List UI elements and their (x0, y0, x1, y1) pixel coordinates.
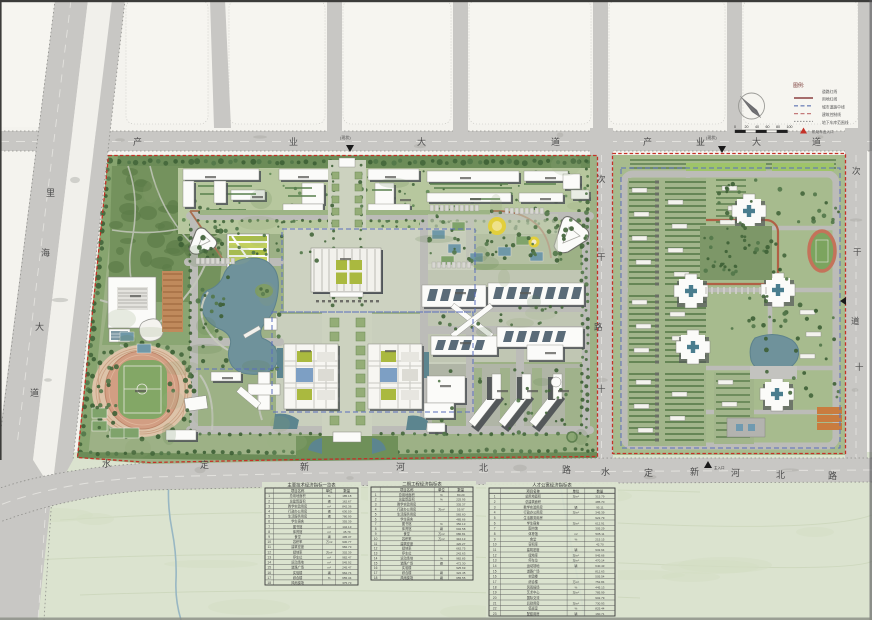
svg-text:路: 路 (594, 322, 603, 332)
svg-text:10: 10 (267, 540, 271, 544)
svg-text:185.18: 185.18 (342, 494, 352, 498)
svg-text:17: 17 (374, 571, 378, 575)
svg-text:4: 4 (375, 508, 377, 512)
svg-text:485.66: 485.66 (456, 517, 466, 521)
svg-text:主要技术经济指标一览表: 主要技术经济指标一览表 (287, 482, 336, 489)
svg-text:825.44: 825.44 (595, 607, 605, 611)
svg-text:次: 次 (597, 174, 606, 184)
svg-text:教学实验用房: 教学实验用房 (397, 502, 416, 507)
svg-text:万m²: 万m² (573, 601, 580, 605)
svg-text:用地红线: 用地红线 (822, 97, 837, 102)
svg-text:食堂: 食堂 (294, 534, 300, 539)
svg-text:470.14: 470.14 (595, 559, 605, 563)
svg-text:5: 5 (268, 515, 270, 519)
svg-text:3: 3 (268, 504, 270, 508)
svg-text:982.85: 982.85 (456, 556, 466, 560)
svg-text:902.79: 902.79 (595, 596, 605, 600)
svg-text:总用地面积: 总用地面积 (290, 493, 307, 498)
svg-text:停车位: 停车位 (528, 558, 538, 563)
svg-text:3: 3 (375, 503, 377, 507)
svg-text:(现状): (现状) (706, 134, 717, 140)
svg-text:315.79: 315.79 (595, 495, 605, 499)
svg-text:业: 业 (289, 137, 298, 147)
svg-text:13: 13 (267, 556, 271, 560)
svg-text:930.77: 930.77 (342, 540, 352, 544)
svg-text:4: 4 (494, 511, 496, 515)
svg-text:m²: m² (327, 525, 331, 529)
svg-text:定: 定 (200, 459, 209, 470)
svg-text:项目名称: 项目名称 (526, 488, 540, 493)
svg-text:里: 里 (46, 188, 55, 198)
svg-text:二期工程经济指标表: 二期工程经济指标表 (402, 481, 442, 488)
svg-text:图例:: 图例: (793, 82, 804, 89)
svg-text:962.74: 962.74 (342, 571, 352, 575)
svg-text:道路红线: 道路红线 (822, 89, 837, 94)
svg-text:数量: 数量 (343, 488, 350, 493)
svg-text:8: 8 (268, 530, 270, 534)
svg-text:万m²: 万m² (573, 521, 580, 525)
svg-text:5: 5 (494, 516, 496, 520)
svg-text:7: 7 (375, 522, 377, 526)
svg-text:辆: 辆 (440, 570, 443, 575)
svg-text:242.63: 242.63 (456, 552, 466, 556)
svg-text:停车位: 停车位 (402, 551, 412, 556)
svg-text:982.47: 982.47 (342, 556, 352, 560)
svg-text:辆: 辆 (328, 514, 331, 519)
svg-text:10: 10 (374, 537, 378, 541)
svg-text:万m²: 万m² (438, 532, 445, 536)
svg-text:4: 4 (268, 510, 270, 514)
svg-text:18: 18 (374, 576, 378, 580)
svg-text:十: 十 (855, 362, 864, 372)
svg-text:总用地面积: 总用地面积 (525, 494, 542, 499)
svg-text:11: 11 (493, 548, 497, 552)
svg-text:1: 1 (494, 495, 496, 499)
svg-text:行政办公用房: 行政办公用房 (288, 509, 307, 514)
svg-text:16: 16 (267, 571, 271, 575)
svg-text:容积率: 容积率 (402, 536, 412, 541)
svg-text:绿地率: 绿地率 (402, 546, 412, 551)
svg-text:道路广场: 道路广场 (291, 565, 304, 570)
svg-text:%: % (575, 537, 578, 541)
svg-text:472.30: 472.30 (456, 561, 466, 565)
svg-text:80: 80 (776, 125, 780, 129)
svg-text:辆: 辆 (574, 547, 577, 552)
svg-text:14: 14 (267, 561, 271, 565)
svg-text:335.37: 335.37 (456, 503, 466, 507)
svg-text:350.13: 350.13 (456, 522, 466, 526)
svg-text:河: 河 (396, 461, 405, 472)
svg-text:13: 13 (493, 559, 497, 563)
svg-text:55.97: 55.97 (457, 508, 465, 512)
svg-text:2: 2 (375, 498, 377, 502)
svg-text:万m²: 万m² (573, 591, 580, 595)
svg-text:0: 0 (734, 125, 736, 129)
svg-text:道: 道 (851, 316, 860, 326)
svg-text:后勤用房: 后勤用房 (527, 600, 540, 605)
svg-text:602.58: 602.58 (456, 527, 466, 531)
svg-text:730.93: 730.93 (595, 601, 605, 605)
svg-text:60: 60 (766, 125, 770, 129)
svg-text:505.11: 505.11 (595, 532, 604, 536)
svg-text:8: 8 (494, 532, 496, 536)
svg-text:总建筑面积: 总建筑面积 (399, 497, 416, 502)
svg-text:行政办公用房: 行政办公用房 (397, 507, 416, 512)
svg-text:13: 13 (374, 552, 378, 556)
svg-text:大: 大 (417, 136, 426, 147)
svg-text:学生宿舍: 学生宿舍 (291, 519, 305, 524)
svg-text:万m²: 万m² (326, 550, 333, 554)
svg-text:绿地率: 绿地率 (528, 552, 538, 557)
svg-text:302.39: 302.39 (342, 550, 352, 554)
svg-text:%: % (440, 556, 443, 560)
svg-text:15: 15 (267, 566, 271, 570)
svg-text:6: 6 (268, 520, 270, 524)
svg-text:20: 20 (493, 596, 497, 600)
svg-text:体育馆: 体育馆 (293, 529, 303, 534)
svg-text:食堂: 食堂 (530, 536, 536, 541)
svg-text:812.63: 812.63 (595, 569, 605, 573)
svg-text:生活服务用房: 生活服务用房 (288, 514, 307, 519)
svg-text:245.47: 245.47 (342, 566, 352, 570)
svg-text:万m²: 万m² (573, 559, 580, 563)
svg-text:总建筑面积: 总建筑面积 (525, 499, 542, 504)
svg-text:785.99: 785.99 (595, 591, 605, 595)
svg-text:14: 14 (493, 564, 497, 568)
svg-text:565.60: 565.60 (456, 512, 466, 516)
svg-text:万m²: 万m² (438, 537, 445, 541)
svg-text:932.64: 932.64 (595, 548, 605, 552)
svg-text:6: 6 (494, 521, 496, 525)
svg-text:体育馆: 体育馆 (402, 526, 412, 531)
svg-text:食堂: 食堂 (404, 531, 410, 536)
svg-text:10: 10 (493, 543, 497, 547)
svg-text:18: 18 (493, 585, 497, 589)
svg-text:新: 新 (300, 461, 309, 472)
svg-text:2: 2 (268, 499, 270, 503)
svg-text:建筑控制线: 建筑控制线 (822, 112, 841, 117)
svg-text:12: 12 (493, 553, 497, 557)
svg-text:9: 9 (375, 532, 377, 536)
svg-text:322.45: 322.45 (456, 571, 466, 575)
svg-text:345.39: 345.39 (595, 511, 605, 515)
svg-text:160.71: 160.71 (595, 612, 605, 616)
svg-text:11: 11 (374, 542, 378, 546)
svg-text:水: 水 (102, 458, 111, 469)
svg-text:辆: 辆 (574, 504, 577, 509)
svg-text:162.67: 162.67 (342, 499, 352, 503)
svg-text:495.37: 495.37 (342, 535, 352, 539)
svg-text:305.29: 305.29 (595, 527, 605, 531)
svg-text:人才公寓经济指标表: 人才公寓经济指标表 (532, 482, 572, 489)
svg-text:%: % (575, 585, 578, 589)
svg-text:12: 12 (267, 550, 271, 554)
svg-text:总建筑面积: 总建筑面积 (290, 498, 307, 503)
svg-text:18: 18 (267, 581, 271, 585)
svg-text:15: 15 (493, 569, 497, 573)
svg-text:(现状): (现状) (340, 134, 351, 140)
svg-text:505.54: 505.54 (595, 575, 605, 579)
svg-text:3: 3 (494, 505, 496, 509)
svg-text:建筑密度: 建筑密度 (291, 544, 305, 549)
svg-text:地下车库范围线: 地下车库范围线 (822, 120, 849, 125)
svg-text:5: 5 (375, 512, 377, 516)
svg-text:142.13: 142.13 (342, 525, 352, 529)
svg-text:运动场地: 运动场地 (527, 563, 541, 568)
svg-text:万m²: 万m² (573, 511, 580, 515)
svg-text:655.34: 655.34 (342, 576, 352, 580)
svg-text:420.27: 420.27 (456, 542, 466, 546)
svg-text:辆: 辆 (328, 534, 331, 539)
svg-text:355.39: 355.39 (342, 520, 352, 524)
svg-text:7: 7 (494, 527, 496, 531)
svg-text:综合楼: 综合楼 (528, 579, 538, 584)
svg-text:11: 11 (268, 545, 272, 549)
svg-text:9: 9 (494, 537, 496, 541)
svg-text:国际交流: 国际交流 (527, 595, 541, 600)
svg-text:95.11: 95.11 (596, 505, 604, 509)
svg-text:%: % (575, 607, 578, 611)
svg-text:主入口: 主入口 (714, 465, 725, 470)
svg-text:12: 12 (374, 547, 378, 551)
svg-text:15: 15 (374, 561, 378, 565)
svg-text:图书馆: 图书馆 (293, 524, 303, 529)
svg-text:风雨操场: 风雨操场 (400, 575, 413, 580)
svg-text:万m²: 万m² (573, 553, 580, 557)
svg-text:道: 道 (551, 136, 560, 147)
svg-text:城市道路中线: 城市道路中线 (822, 104, 845, 109)
svg-text:%: % (440, 498, 443, 502)
svg-text:6: 6 (375, 517, 377, 521)
svg-text:新: 新 (690, 466, 699, 477)
svg-text:海: 海 (41, 247, 50, 258)
svg-text:20: 20 (745, 125, 749, 129)
svg-text:艺术中心: 艺术中心 (527, 590, 541, 595)
svg-text:40: 40 (755, 125, 759, 129)
svg-text:16: 16 (374, 566, 378, 570)
svg-text:教学实验用房: 教学实验用房 (524, 504, 543, 509)
svg-text:项目名称: 项目名称 (400, 487, 414, 492)
svg-text:545.92: 545.92 (342, 561, 352, 565)
svg-text:图书馆: 图书馆 (528, 526, 538, 531)
svg-text:23: 23 (493, 612, 497, 616)
svg-text:综合楼: 综合楼 (402, 570, 412, 575)
svg-text:8: 8 (375, 527, 377, 531)
svg-text:路: 路 (562, 464, 571, 475)
svg-text:大: 大 (35, 321, 44, 332)
svg-text:实验楼: 实验楼 (293, 570, 303, 575)
svg-text:容积率: 容积率 (528, 542, 538, 547)
svg-text:道: 道 (812, 136, 821, 147)
svg-text:学生宿舍: 学生宿舍 (527, 520, 541, 525)
svg-text:680.81: 680.81 (456, 532, 466, 536)
svg-text:单位: 单位 (438, 487, 445, 492)
svg-text:m²: m² (327, 530, 331, 534)
svg-text:辆: 辆 (574, 563, 577, 568)
svg-text:m²: m² (327, 504, 331, 508)
svg-text:实验楼: 实验楼 (402, 565, 412, 570)
svg-text:%: % (440, 493, 443, 497)
svg-text:万m²: 万m² (326, 540, 333, 544)
svg-text:780.99: 780.99 (342, 515, 352, 519)
svg-text:辆: 辆 (328, 570, 331, 575)
svg-text:行政办公用房: 行政办公用房 (524, 510, 543, 515)
svg-text:建筑密度: 建筑密度 (527, 547, 541, 552)
svg-text:万m²: 万m² (573, 580, 580, 584)
svg-text:绿地率: 绿地率 (293, 549, 303, 554)
svg-text:综合楼: 综合楼 (293, 575, 303, 580)
svg-text:干: 干 (853, 247, 862, 257)
svg-text:215.15: 215.15 (595, 537, 605, 541)
svg-text:辆: 辆 (440, 526, 443, 531)
svg-text:数量: 数量 (457, 487, 464, 492)
svg-text:982.73: 982.73 (342, 545, 352, 549)
svg-text:42.70: 42.70 (596, 543, 604, 547)
svg-text:80.20: 80.20 (457, 493, 465, 497)
svg-text:教学实验用房: 教学实验用房 (288, 503, 307, 508)
svg-text:次: 次 (852, 166, 861, 176)
svg-text:产: 产 (133, 136, 142, 147)
svg-text:612.91: 612.91 (595, 521, 605, 525)
svg-text:辆: 辆 (440, 560, 443, 565)
svg-text:1: 1 (268, 494, 270, 498)
svg-text:925.69: 925.69 (456, 566, 466, 570)
svg-text:体育馆: 体育馆 (528, 531, 538, 536)
svg-text:2: 2 (494, 500, 496, 504)
svg-text:485.70: 485.70 (595, 500, 605, 504)
svg-text:万m²: 万m² (438, 508, 445, 512)
svg-text:100: 100 (787, 125, 793, 129)
svg-text:河: 河 (731, 467, 740, 478)
svg-text:922.79: 922.79 (595, 516, 605, 520)
svg-text:17: 17 (267, 576, 271, 580)
svg-text:752.84: 752.84 (595, 580, 605, 584)
svg-text:辆: 辆 (328, 498, 331, 503)
svg-text:45.79: 45.79 (343, 530, 351, 534)
svg-text:单位: 单位 (326, 488, 333, 493)
svg-text:m²: m² (574, 532, 578, 536)
svg-text:655.55: 655.55 (456, 576, 466, 580)
svg-text:定: 定 (644, 467, 653, 478)
svg-text:21: 21 (493, 601, 497, 605)
svg-text:北: 北 (776, 470, 785, 480)
svg-text:225.95: 225.95 (456, 498, 466, 502)
svg-text:m²: m² (327, 561, 331, 565)
svg-text:数量: 数量 (597, 488, 604, 493)
svg-text:运动场地: 运动场地 (291, 560, 305, 565)
svg-text:停车位: 停车位 (293, 555, 303, 560)
svg-text:总用地面积: 总用地面积 (399, 492, 416, 497)
svg-text:生活服务用房: 生活服务用房 (397, 511, 416, 516)
svg-text:实验楼: 实验楼 (528, 574, 538, 579)
svg-text:容积率: 容积率 (293, 539, 303, 544)
svg-text:辆: 辆 (574, 611, 577, 616)
svg-text:630.59: 630.59 (342, 510, 352, 514)
svg-text:大: 大 (752, 136, 761, 147)
svg-text:7: 7 (268, 525, 270, 529)
svg-text:445.13: 445.13 (595, 585, 605, 589)
svg-text:17: 17 (493, 580, 497, 584)
svg-text:道路广场: 道路广场 (527, 568, 540, 573)
svg-text:m²: m² (327, 566, 331, 570)
svg-text:干: 干 (597, 252, 606, 262)
svg-text:配套用房: 配套用房 (527, 611, 540, 616)
svg-text:业: 业 (696, 137, 705, 147)
svg-text:842.36: 842.36 (342, 504, 352, 508)
svg-text:662.75: 662.75 (456, 547, 466, 551)
svg-text:%: % (440, 522, 443, 526)
svg-text:375.73: 375.73 (342, 581, 352, 585)
svg-text:水: 水 (601, 466, 610, 477)
svg-text:辆: 辆 (440, 575, 443, 580)
svg-text:19: 19 (493, 591, 497, 595)
svg-text:945.66: 945.66 (595, 553, 605, 557)
svg-text:辆: 辆 (328, 509, 331, 514)
svg-text:产: 产 (643, 136, 652, 147)
svg-text:640.43: 640.43 (595, 564, 605, 568)
svg-text:%: % (328, 494, 331, 498)
svg-text:道路广场: 道路广场 (400, 560, 413, 565)
svg-text:风雨操场: 风雨操场 (527, 584, 540, 589)
svg-text:学生宿舍: 学生宿舍 (400, 516, 414, 521)
svg-text:万m²: 万m² (573, 495, 580, 499)
svg-text:十: 十 (597, 384, 606, 394)
svg-text:%: % (328, 576, 331, 580)
svg-text:9: 9 (268, 535, 270, 539)
svg-text:16: 16 (493, 575, 497, 579)
svg-text:建筑密度: 建筑密度 (400, 541, 414, 546)
svg-text:14: 14 (374, 556, 378, 560)
svg-text:图书馆: 图书馆 (402, 521, 412, 526)
svg-text:1: 1 (375, 493, 377, 497)
svg-text:m²: m² (327, 556, 331, 560)
svg-text:生活服务用房: 生活服务用房 (524, 515, 543, 520)
svg-text:路: 路 (828, 470, 837, 481)
svg-text:单位: 单位 (573, 488, 580, 493)
svg-text:机动车出入口: 机动车出入口 (812, 129, 834, 134)
svg-text:22: 22 (493, 607, 497, 611)
svg-text:北: 北 (479, 463, 488, 473)
svg-text:项目名称: 项目名称 (291, 488, 305, 493)
svg-text:值班室: 值班室 (528, 606, 538, 611)
svg-text:道: 道 (30, 387, 39, 398)
svg-text:运动场地: 运动场地 (400, 555, 414, 560)
svg-text:风雨操场: 风雨操场 (291, 580, 304, 585)
svg-text:310.13: 310.13 (456, 537, 466, 541)
